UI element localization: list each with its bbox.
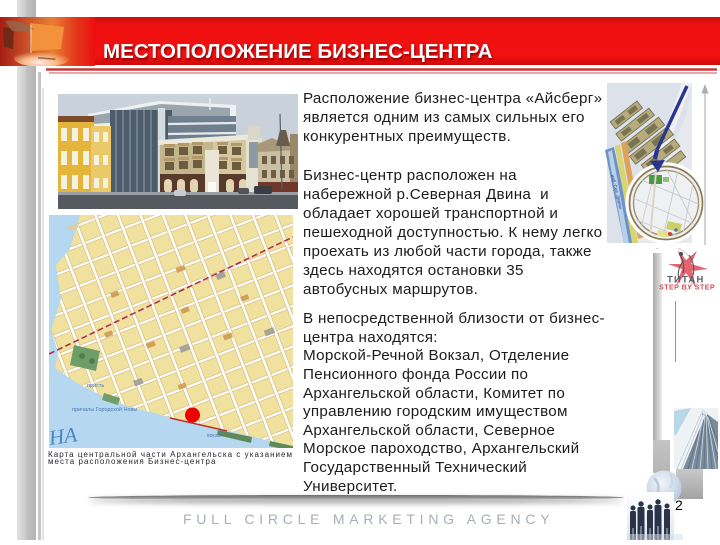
svg-text:причалы Городской Новы: причалы Городской Новы	[72, 406, 137, 413]
svg-text:STEP BY STEP: STEP BY STEP	[659, 283, 715, 292]
svg-text:вокзал: вокзал	[207, 433, 223, 439]
svg-text:НА: НА	[49, 422, 79, 448]
svg-text:присть: присть	[87, 383, 104, 389]
